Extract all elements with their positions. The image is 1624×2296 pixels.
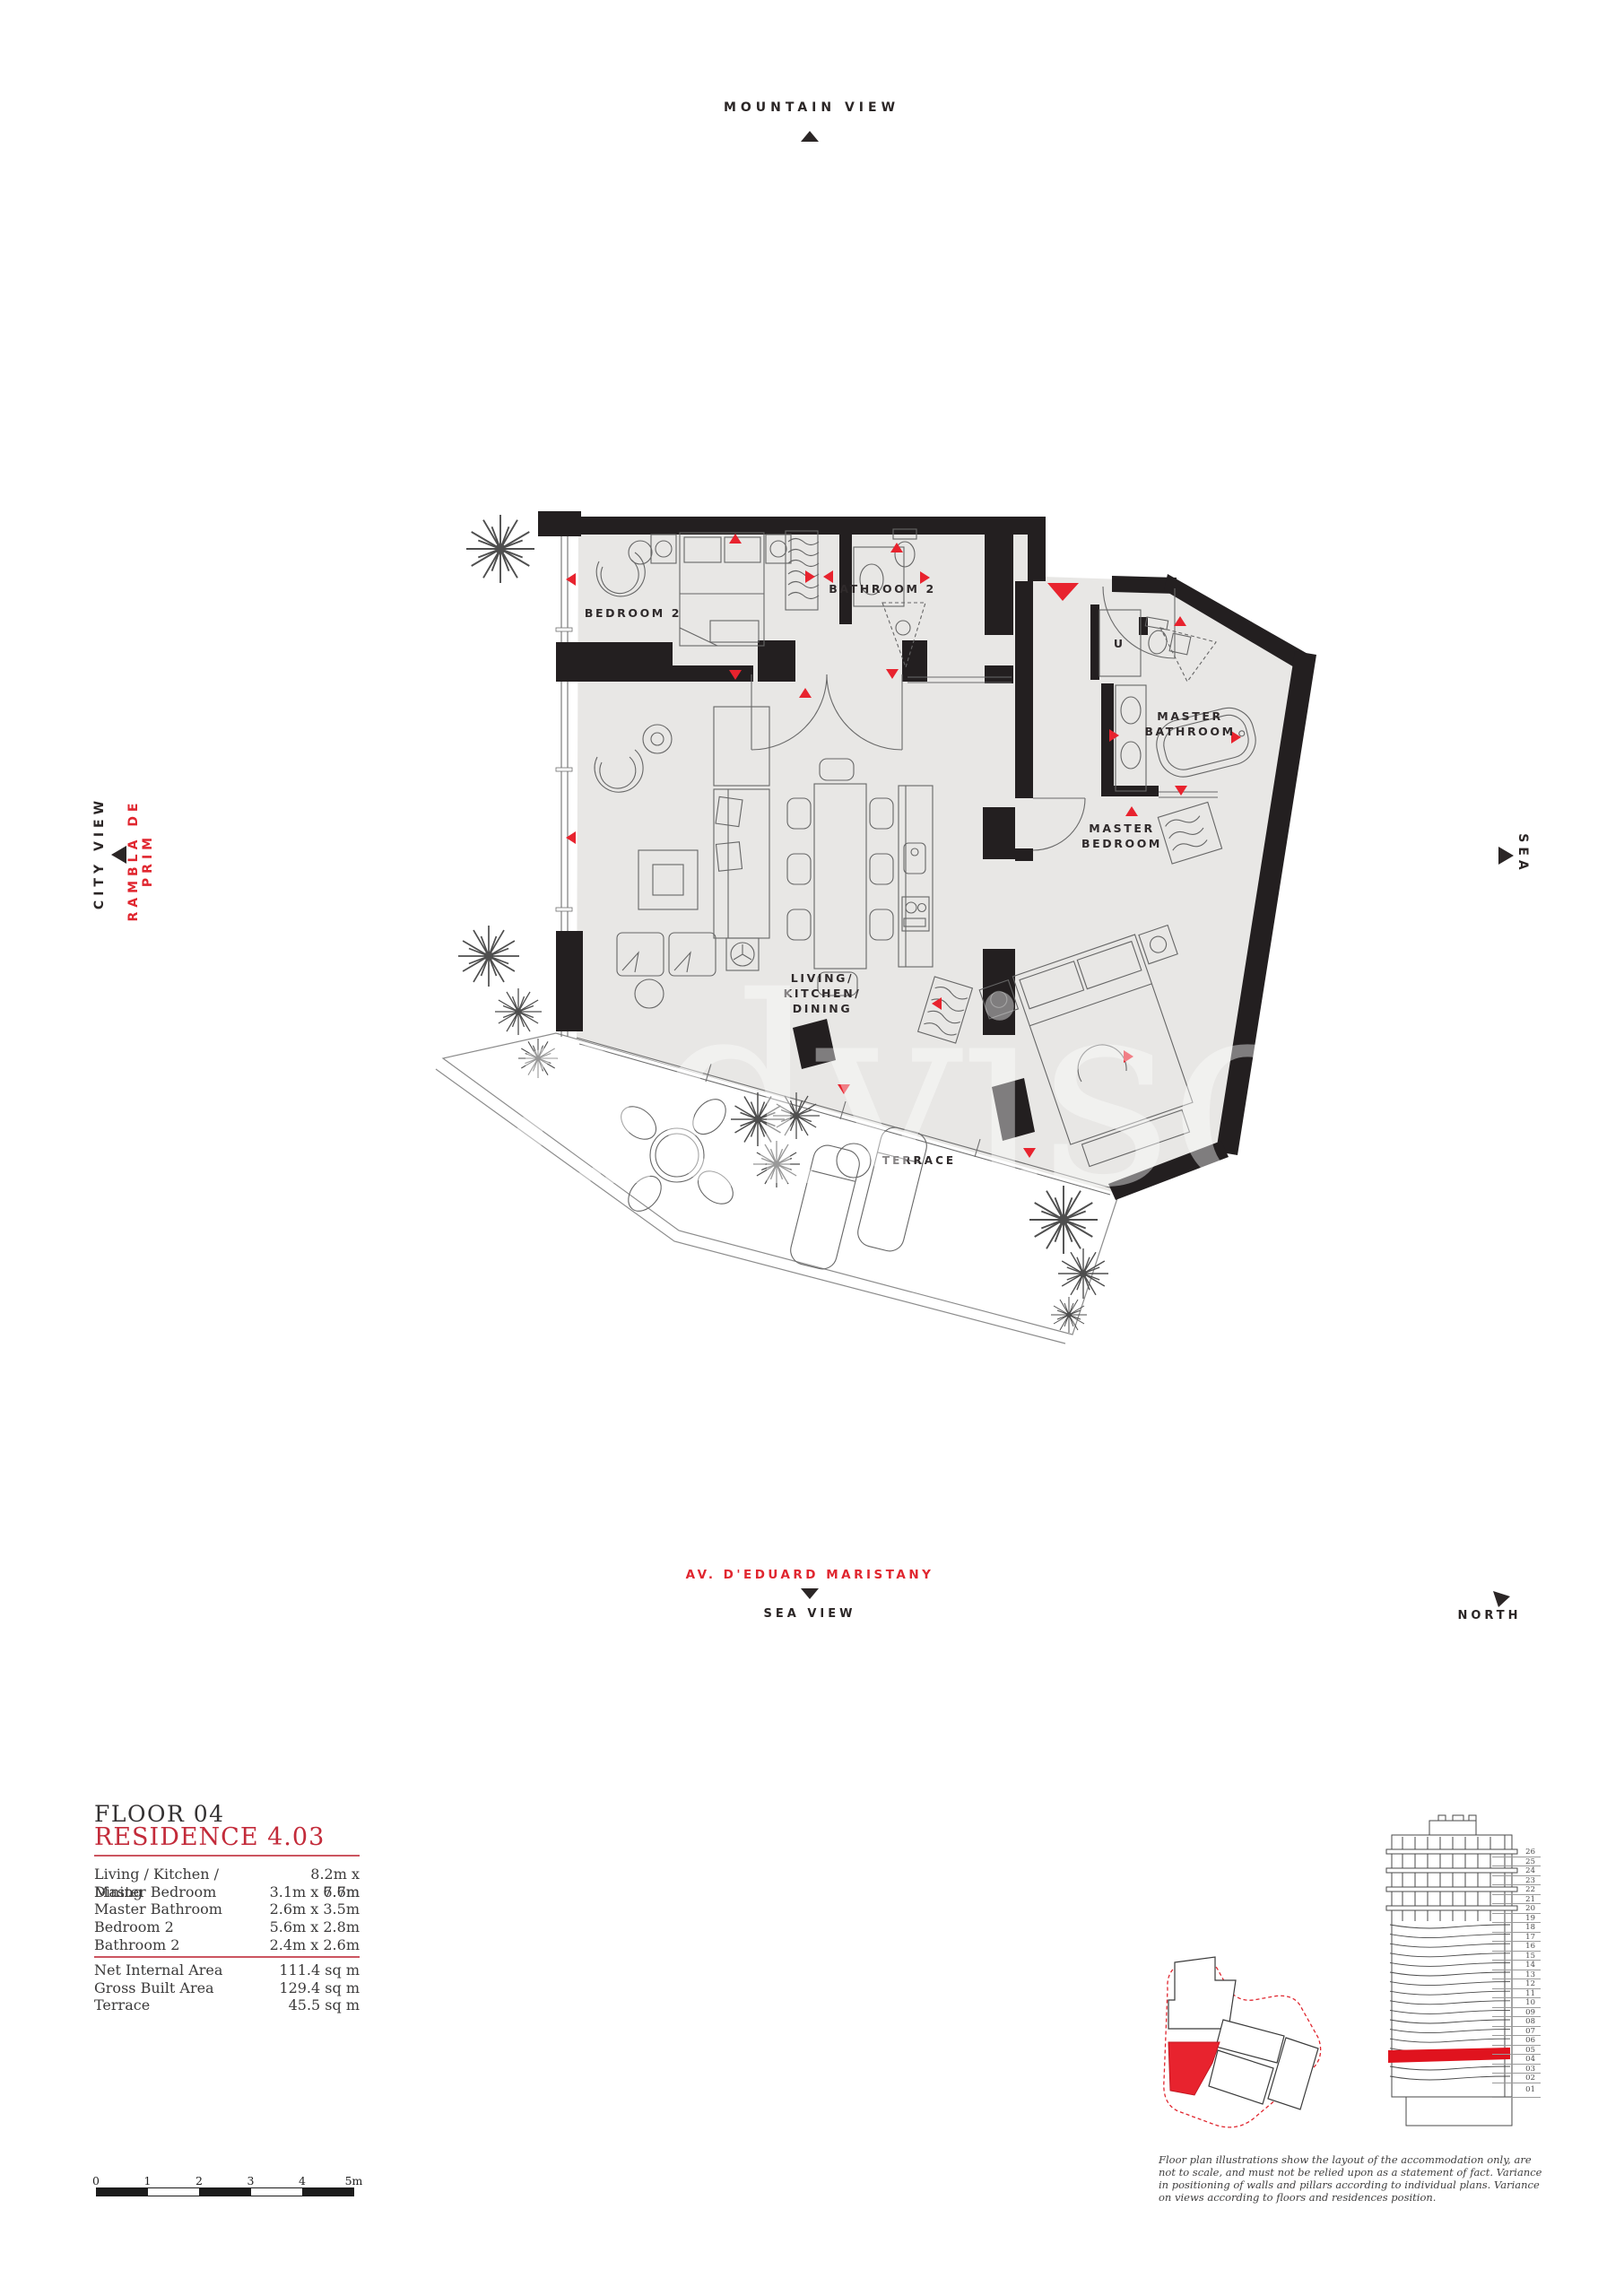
- tower-floor-label: 25: [1492, 1857, 1541, 1867]
- scale-number: 5m: [345, 2174, 363, 2187]
- sea-label: SEA: [1515, 818, 1530, 890]
- tower-floor-label: 21: [1492, 1895, 1541, 1905]
- tower-floor-label: 12: [1492, 1979, 1541, 1989]
- room-label-terrace: TERRACE: [829, 1153, 1009, 1169]
- room-label-master-bathroom: MASTER BATHROOM: [1100, 709, 1280, 739]
- seaview-arrow-icon: [801, 1588, 819, 1599]
- dimension-row: Master Bedroom3.1m x 6.6m: [94, 1883, 360, 1901]
- tower-floor-label: 15: [1492, 1952, 1541, 1961]
- tower-floor-label: 03: [1492, 2065, 1541, 2074]
- city-view-label: CITY VIEW: [92, 790, 107, 916]
- tower-floor-label: 02: [1492, 2074, 1541, 2083]
- scale-bar-labels: 012345m: [96, 2174, 354, 2187]
- tower-floor-label: 17: [1492, 1933, 1541, 1943]
- rule-top: [94, 1855, 360, 1857]
- utility-label: U: [1109, 636, 1127, 651]
- residence-title: RESIDENCE 4.03: [94, 1823, 325, 1851]
- area-row: Net Internal Area111.4 sq m: [94, 1961, 360, 1979]
- area-row: Gross Built Area129.4 sq m: [94, 1979, 360, 1997]
- tower-floor-label: 07: [1492, 2027, 1541, 2037]
- room-label-master-bedroom: MASTER BEDROOM: [1032, 821, 1211, 851]
- north-label: NORTH: [1436, 1609, 1543, 1622]
- dimension-row: Master Bathroom2.6m x 3.5m: [94, 1900, 360, 1918]
- disclaimer-text: Floor plan illustrations show the layout…: [1159, 2153, 1550, 2204]
- areas-table: Net Internal Area111.4 sq mGross Built A…: [94, 1961, 360, 2014]
- tower-floor-label: 16: [1492, 1942, 1541, 1952]
- scale-number: 4: [299, 2174, 306, 2187]
- tower-floor-label: 10: [1492, 1998, 1541, 2008]
- rambla-de-prim-label: RAMBLA DE PRIM: [126, 775, 155, 945]
- north-arrow-icon: [1493, 1591, 1510, 1607]
- room-label-living-kitchen-dining: LIVING/ KITCHEN/ DINING: [733, 970, 912, 1016]
- scale-number: 2: [195, 2174, 203, 2187]
- scale-number: 3: [248, 2174, 255, 2187]
- tower-floor-label: 06: [1492, 2036, 1541, 2046]
- mountain-arrow-icon: [801, 131, 819, 142]
- dimension-row: Bedroom 25.6m x 2.8m: [94, 1918, 360, 1936]
- floor-plan-page: MOUNTAIN VIEW CITY VIEW RAMBLA DE PRIM S…: [0, 0, 1624, 2296]
- tower-floor-label: 01: [1492, 2083, 1541, 2098]
- tower-floor-label: 20: [1492, 1904, 1541, 1914]
- dimension-row: Living / Kitchen / Dining8.2m x 7.7m: [94, 1865, 360, 1883]
- area-row: Terrace45.5 sq m: [94, 1996, 360, 2014]
- tower-floor-labels: 2625242322212019181716151413121110090807…: [1492, 1848, 1541, 2098]
- sea-view-label: SEA VIEW: [675, 1607, 944, 1621]
- tower-floor-label: 13: [1492, 1970, 1541, 1980]
- tower-floor-label: 14: [1492, 1961, 1541, 1970]
- sea-arrow-icon: [1498, 847, 1514, 865]
- room-dimensions-table: Living / Kitchen / Dining8.2m x 7.7mMast…: [94, 1865, 360, 1953]
- tower-floor-label: 18: [1492, 1923, 1541, 1933]
- tower-floor-label: 08: [1492, 2017, 1541, 2027]
- scale-bar: 012345m: [96, 2174, 354, 2196]
- keyplan-drawing: [1164, 1957, 1321, 2127]
- tower-floor-label: 23: [1492, 1876, 1541, 1886]
- scale-bar-segments: [96, 2187, 354, 2196]
- scale-number: 1: [144, 2174, 152, 2187]
- scale-number: 0: [92, 2174, 100, 2187]
- tower-floor-label: 09: [1492, 2008, 1541, 2018]
- room-label-bedroom-2: BEDROOM 2: [543, 605, 723, 621]
- tower-floor-label: 24: [1492, 1866, 1541, 1876]
- tower-floor-label: 19: [1492, 1914, 1541, 1924]
- city-arrow-icon: [111, 846, 126, 864]
- tower-floor-label: 22: [1492, 1885, 1541, 1895]
- tower-floor-label: 11: [1492, 1989, 1541, 1999]
- avenue-label: AV. D'EDUARD MARISTANY: [630, 1568, 989, 1582]
- dimension-row: Bathroom 22.4m x 2.6m: [94, 1936, 360, 1954]
- rule-middle: [94, 1956, 360, 1958]
- room-label-bathroom-2: BATHROOM 2: [793, 581, 972, 596]
- tower-floor-label: 05: [1492, 2046, 1541, 2056]
- tower-floor-label: 04: [1492, 2055, 1541, 2065]
- tower-floor-label: 26: [1492, 1848, 1541, 1857]
- mountain-view-label: MOUNTAIN VIEW: [677, 100, 946, 115]
